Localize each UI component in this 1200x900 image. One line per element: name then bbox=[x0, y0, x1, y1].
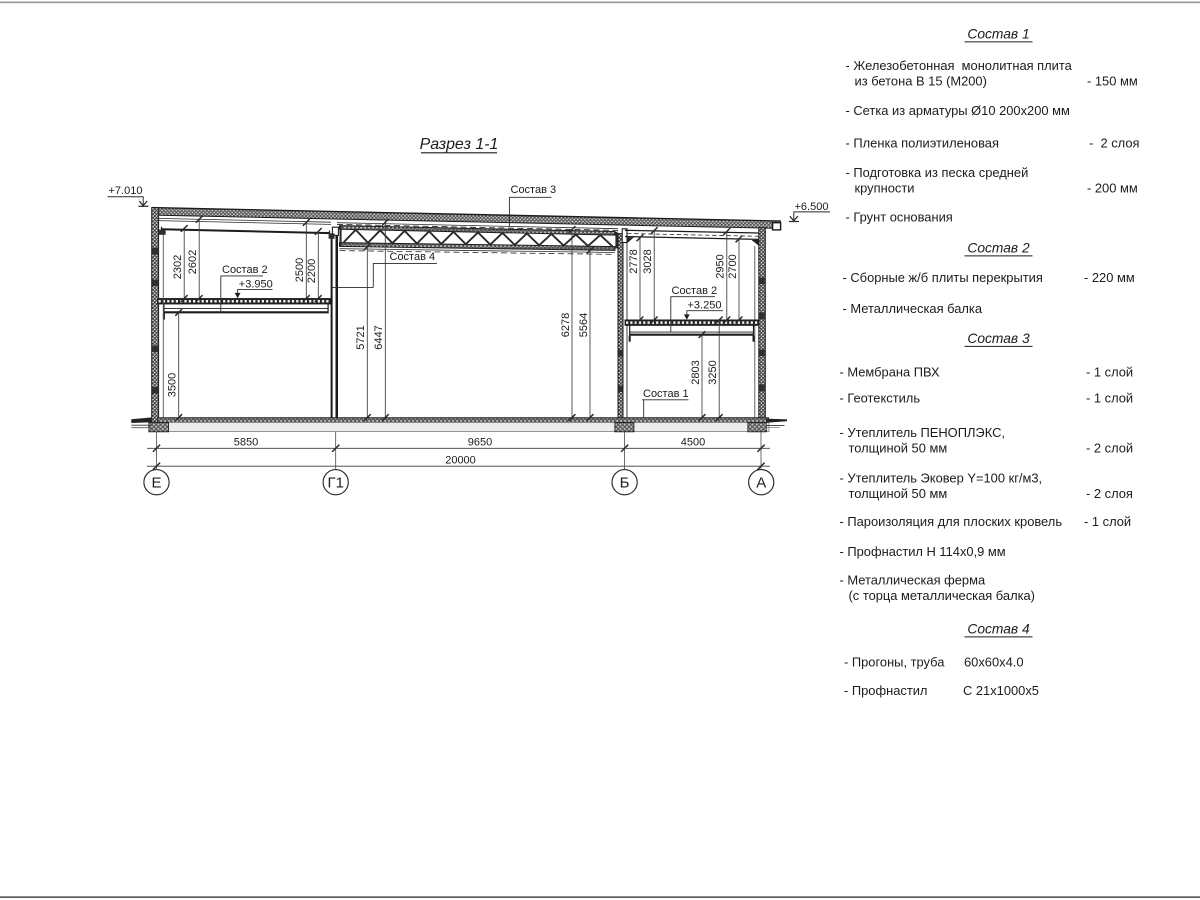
svg-text:Состав 2: Состав 2 bbox=[672, 285, 718, 297]
svg-text:6278: 6278 bbox=[560, 313, 572, 337]
svg-text:- 1 слой: - 1 слой bbox=[1086, 364, 1133, 379]
svg-text:2950: 2950 bbox=[715, 254, 727, 278]
svg-text:(с торца металлическая балка): (с торца металлическая балка) bbox=[849, 588, 1035, 603]
svg-text:+6.500: +6.500 bbox=[795, 201, 829, 213]
svg-text:4500: 4500 bbox=[681, 437, 705, 449]
svg-text:5564: 5564 bbox=[578, 313, 590, 337]
svg-text:- Железобетонная монолитная п: - Железобетонная монолитная плита bbox=[846, 58, 1073, 73]
svg-text:- Профнастил: - Профнастил bbox=[844, 683, 927, 698]
svg-text:толщиной 50 мм: толщиной 50 мм bbox=[849, 486, 948, 501]
svg-text:5721: 5721 bbox=[355, 325, 367, 349]
svg-text:- 2 слой: - 2 слой bbox=[1086, 441, 1133, 456]
svg-text:2302: 2302 bbox=[172, 255, 184, 279]
svg-text:- Мембрана ПВХ: - Мембрана ПВХ bbox=[840, 364, 941, 379]
svg-text:- Утеплитель ПЕНОПЛЭКС,: - Утеплитель ПЕНОПЛЭКС, bbox=[840, 425, 1005, 440]
svg-text:Состав 3: Состав 3 bbox=[967, 331, 1030, 346]
svg-text:20000: 20000 bbox=[445, 454, 476, 466]
svg-text:- Прогоны, труба: - Прогоны, труба bbox=[844, 655, 945, 670]
svg-text:- 1 слой: - 1 слой bbox=[1084, 514, 1131, 529]
svg-text:Разрез 1-1: Разрез 1-1 bbox=[420, 136, 499, 153]
svg-text:- 2 слоя: - 2 слоя bbox=[1086, 486, 1133, 501]
svg-text:+3.250: +3.250 bbox=[688, 300, 722, 312]
svg-text:3028: 3028 bbox=[642, 249, 654, 273]
svg-text:2602: 2602 bbox=[187, 250, 199, 274]
svg-text:Состав 2: Состав 2 bbox=[967, 241, 1030, 256]
svg-text:- 220 мм: - 220 мм bbox=[1084, 270, 1135, 285]
svg-text:3500: 3500 bbox=[167, 373, 179, 397]
svg-text:Состав 1: Состав 1 bbox=[643, 388, 689, 400]
svg-text:из бетона В 15 (М200): из бетона В 15 (М200) bbox=[855, 74, 987, 89]
svg-text:9650: 9650 bbox=[468, 437, 492, 449]
svg-text:Е: Е bbox=[151, 474, 161, 491]
svg-text:Б: Б bbox=[620, 474, 630, 491]
svg-text:3250: 3250 bbox=[707, 360, 719, 384]
svg-text:- Металлическая ферма: - Металлическая ферма bbox=[840, 572, 986, 587]
svg-text:+3.950: +3.950 bbox=[239, 278, 273, 290]
svg-text:60х60х4.0: 60х60х4.0 bbox=[964, 655, 1024, 670]
svg-text:2700: 2700 bbox=[727, 254, 739, 278]
svg-text:- Сборные ж/б плиты перекрытия: - Сборные ж/б плиты перекрытия bbox=[843, 270, 1043, 285]
svg-text:Состав 2: Состав 2 bbox=[222, 264, 268, 276]
svg-text:6447: 6447 bbox=[373, 325, 385, 349]
svg-text:- Пленка полиэтиленовая: - Пленка полиэтиленовая bbox=[846, 136, 999, 151]
svg-text:2500: 2500 bbox=[294, 258, 306, 282]
svg-text:- 200 мм: - 200 мм bbox=[1087, 181, 1138, 196]
svg-text:- Сетка из арматуры Ø10 200х20: - Сетка из арматуры Ø10 200х200 мм bbox=[846, 103, 1070, 118]
svg-text:Состав 1: Состав 1 bbox=[967, 27, 1029, 42]
svg-text:- Подготовка из песка средней: - Подготовка из песка средней bbox=[846, 165, 1029, 180]
svg-text:Состав 4: Состав 4 bbox=[390, 251, 436, 263]
svg-text:- Пароизоляция для плоских кро: - Пароизоляция для плоских кровель bbox=[840, 514, 1063, 529]
svg-text:- 2 слоя: - 2 слоя bbox=[1089, 136, 1139, 151]
svg-text:Состав 4: Состав 4 bbox=[967, 622, 1030, 637]
svg-text:5850: 5850 bbox=[234, 437, 258, 449]
svg-text:- 150 мм: - 150 мм bbox=[1087, 74, 1138, 89]
svg-text:- Геотекстиль: - Геотекстиль bbox=[840, 390, 921, 405]
svg-text:- 1 слой: - 1 слой bbox=[1086, 390, 1133, 405]
svg-text:+7.010: +7.010 bbox=[109, 185, 143, 197]
svg-text:- Профнастил Н 114х0,9 мм: - Профнастил Н 114х0,9 мм bbox=[840, 544, 1006, 559]
svg-text:- Утеплитель Эковер Y=100 кг/м: - Утеплитель Эковер Y=100 кг/м3, bbox=[840, 471, 1043, 486]
svg-text:Состав 3: Состав 3 bbox=[511, 184, 557, 196]
svg-text:Г1: Г1 bbox=[327, 474, 343, 491]
svg-text:2778: 2778 bbox=[628, 249, 640, 273]
svg-text:- Грунт основания: - Грунт основания bbox=[846, 210, 953, 225]
svg-text:С 21х1000х5: С 21х1000х5 bbox=[963, 683, 1039, 698]
svg-text:крупности: крупности bbox=[855, 181, 915, 196]
svg-text:2200: 2200 bbox=[306, 259, 318, 283]
svg-text:А: А bbox=[756, 474, 766, 491]
svg-text:толщиной 50 мм: толщиной 50 мм bbox=[849, 441, 948, 456]
svg-text:2803: 2803 bbox=[690, 360, 702, 384]
svg-text:- Металлическая балка: - Металлическая балка bbox=[843, 301, 983, 316]
